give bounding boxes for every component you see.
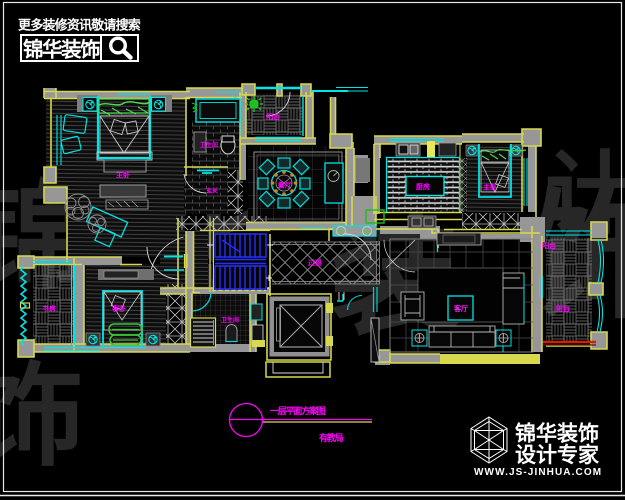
svg-text:过道: 过道 — [308, 258, 322, 267]
svg-text:卫生间: 卫生间 — [221, 316, 239, 324]
svg-text:餐厅: 餐厅 — [277, 181, 292, 190]
svg-text:书房: 书房 — [42, 304, 56, 313]
svg-text:一层平面方案图: 一层平面方案图 — [270, 405, 326, 416]
svg-text:有教局: 有教局 — [319, 432, 344, 443]
svg-text:卫生间: 卫生间 — [200, 141, 218, 149]
svg-text:更多装修资讯敬请搜索: 更多装修资讯敬请搜索 — [18, 18, 141, 33]
svg-text:WWW.JS-JINHUA.COM: WWW.JS-JINHUA.COM — [474, 467, 602, 478]
svg-text:主卧: 主卧 — [483, 183, 497, 192]
svg-text:阳台: 阳台 — [556, 304, 570, 313]
svg-text:玄关: 玄关 — [206, 187, 218, 195]
svg-text:阳台: 阳台 — [542, 241, 556, 250]
svg-text:阳台: 阳台 — [266, 112, 280, 121]
svg-text:锦华装饰: 锦华装饰 — [515, 422, 599, 446]
svg-text:客卧: 客卧 — [111, 304, 126, 313]
svg-text:主卧: 主卧 — [116, 170, 130, 179]
svg-text:计: 计 — [545, 145, 625, 245]
svg-text:设计专家: 设计专家 — [515, 443, 600, 467]
svg-text:锦华装饰: 锦华装饰 — [23, 38, 100, 62]
svg-text:厨房: 厨房 — [416, 182, 430, 191]
svg-text:客厅: 客厅 — [453, 304, 468, 313]
svg-text:饰: 饰 — [0, 354, 84, 479]
